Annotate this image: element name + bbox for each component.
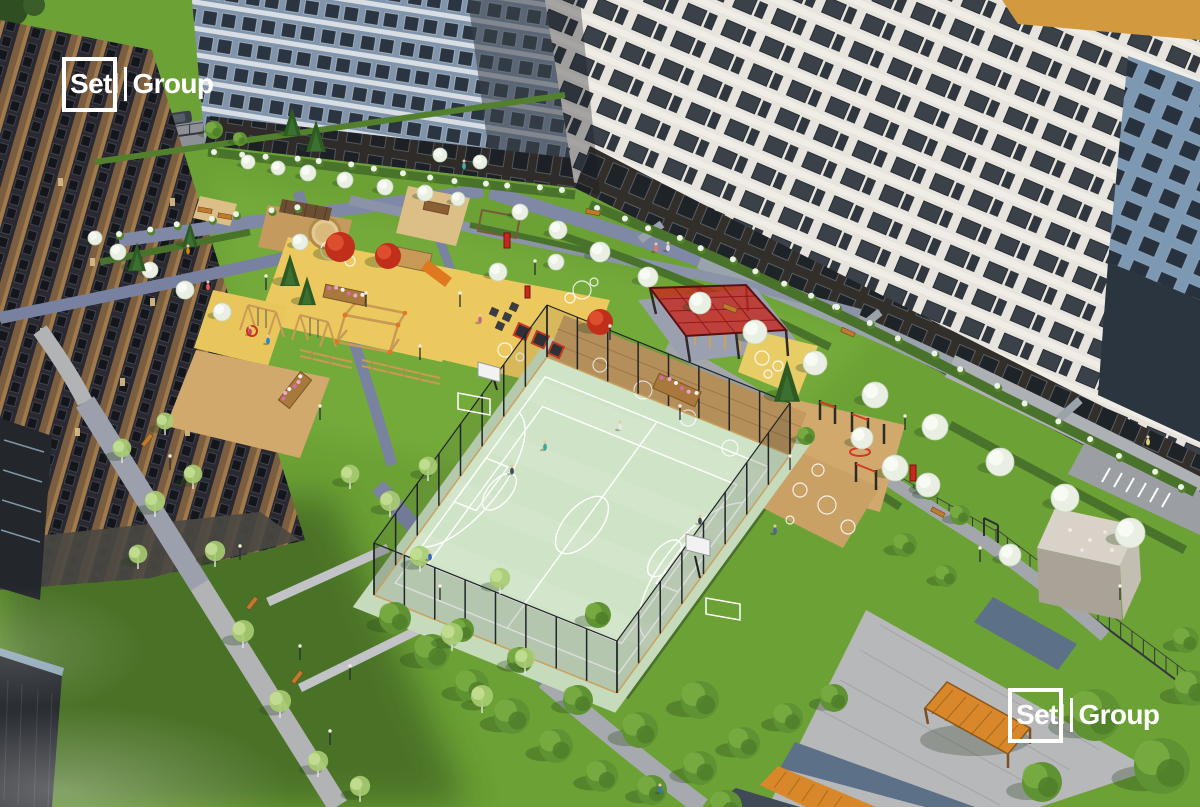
render-canvas: Setl Group Setl Group (0, 0, 1200, 807)
scene-art (0, 0, 1200, 807)
